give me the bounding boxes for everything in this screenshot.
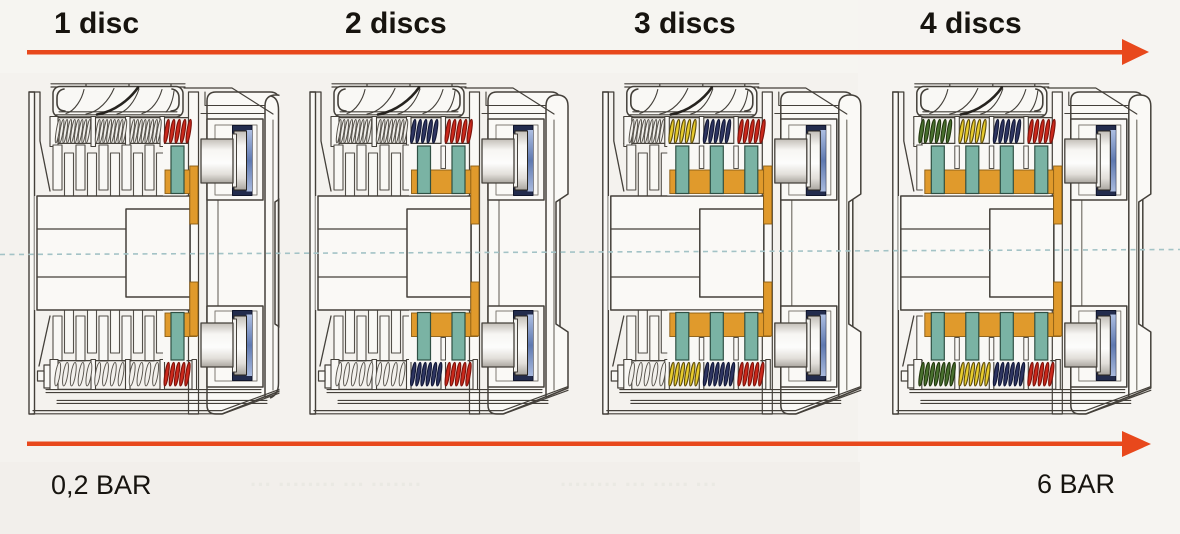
svg-text:········ ··· ····· ···: ········ ··· ····· ··· <box>560 472 718 497</box>
svg-text:1 disc: 1 disc <box>54 7 139 40</box>
svg-text:2 discs: 2 discs <box>345 7 447 40</box>
svg-text:··· ········ ··· ·······: ··· ········ ··· ······· <box>250 472 422 497</box>
svg-text:6 BAR: 6 BAR <box>1037 469 1115 499</box>
svg-text:3 discs: 3 discs <box>634 7 736 40</box>
svg-text:4 discs: 4 discs <box>920 7 1022 40</box>
svg-text:0,2 BAR: 0,2 BAR <box>51 470 152 500</box>
